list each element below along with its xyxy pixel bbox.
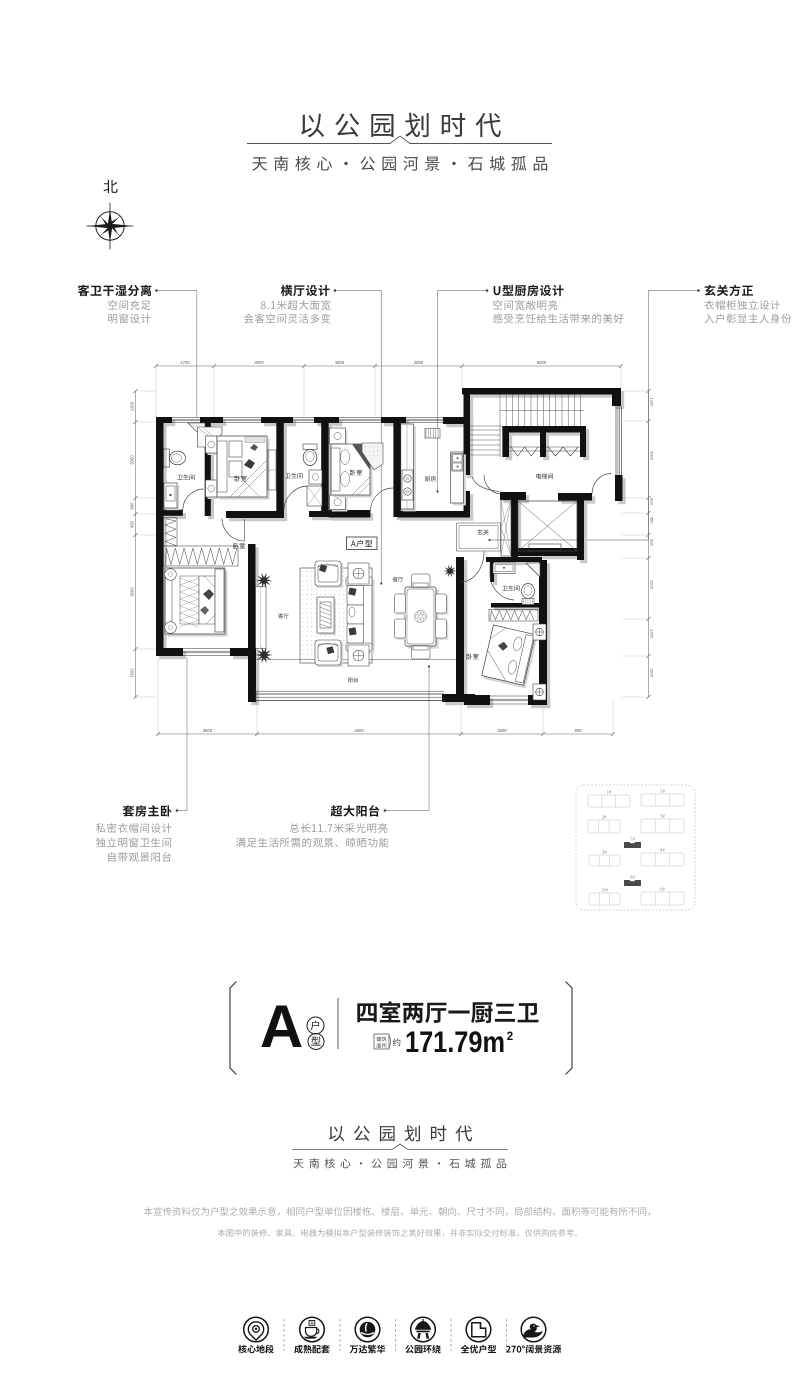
svg-text:1200: 1200 [130,401,135,411]
svg-text:900: 900 [575,728,583,733]
svg-text:1350: 1350 [650,629,655,639]
svg-text:2850: 2850 [414,360,424,365]
svg-text:3300: 3300 [497,728,507,733]
svg-text:171.79m: 171.79m [405,1026,505,1059]
svg-text:1200: 1200 [650,398,655,408]
svg-text:4500: 4500 [354,728,364,733]
svg-text:1500: 1500 [650,668,655,678]
svg-text:450: 450 [650,517,655,524]
svg-text:450: 450 [130,520,135,528]
svg-text:1700: 1700 [180,360,190,365]
svg-text:3000: 3000 [130,455,135,465]
svg-text:3800: 3800 [203,728,213,733]
svg-text:1800: 1800 [335,360,345,365]
svg-text:1500: 1500 [130,668,135,678]
svg-text:2200: 2200 [650,580,655,590]
svg-text:600: 600 [650,498,655,505]
svg-text:3000: 3000 [650,451,655,461]
svg-text:3000: 3000 [130,587,135,597]
svg-text:6000: 6000 [537,360,547,365]
svg-text:600: 600 [130,502,135,510]
svg-text:A: A [260,993,303,1060]
svg-text:3000: 3000 [254,360,264,365]
svg-text:600: 600 [650,539,655,546]
svg-text:2: 2 [507,1031,513,1043]
